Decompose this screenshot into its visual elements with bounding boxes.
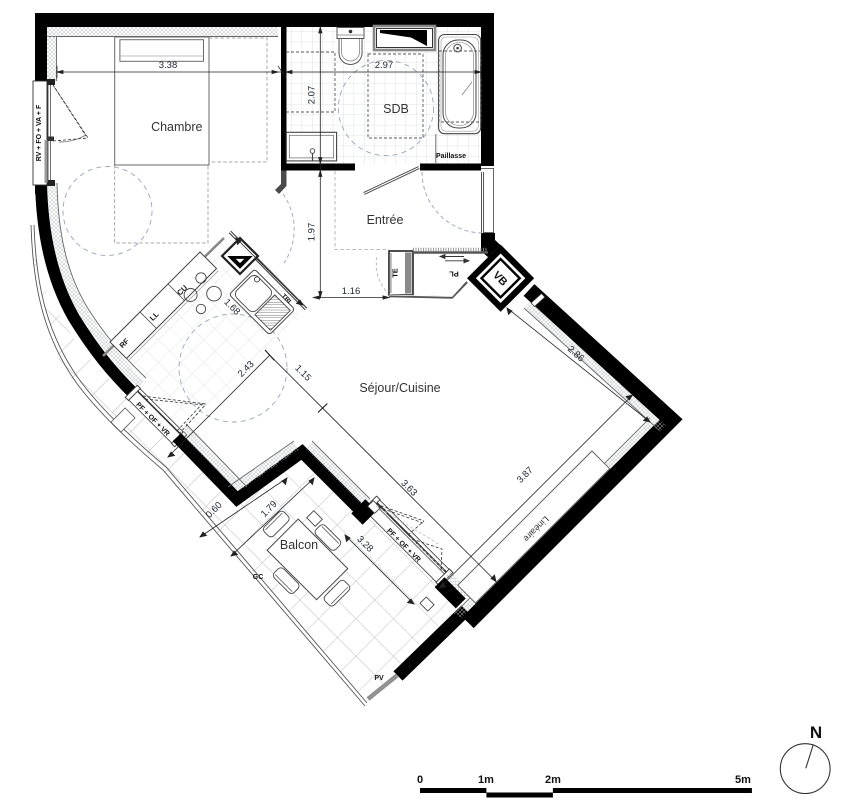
svg-text:2.97: 2.97 <box>375 60 394 71</box>
svg-text:1m: 1m <box>478 774 494 786</box>
svg-text:Chambre: Chambre <box>151 120 202 134</box>
svg-text:5m: 5m <box>735 774 751 786</box>
svg-text:Balcon: Balcon <box>280 538 318 552</box>
svg-text:1.97: 1.97 <box>307 223 318 242</box>
svg-text:GC: GC <box>253 574 264 581</box>
svg-text:2.07: 2.07 <box>307 86 318 105</box>
svg-text:1.16: 1.16 <box>342 286 361 297</box>
svg-text:Entrée: Entrée <box>367 213 404 227</box>
svg-text:N: N <box>810 723 822 742</box>
svg-text:0: 0 <box>417 774 423 786</box>
svg-text:RV + FO + VA + F: RV + FO + VA + F <box>36 104 43 161</box>
svg-text:2m: 2m <box>545 774 561 786</box>
svg-text:Séjour/Cuisine: Séjour/Cuisine <box>359 381 440 395</box>
svg-text:TE: TE <box>391 268 400 278</box>
svg-text:SDB: SDB <box>383 102 409 116</box>
svg-text:3.38: 3.38 <box>159 60 178 71</box>
svg-text:PL: PL <box>449 270 459 279</box>
svg-text:Paillasse: Paillasse <box>436 153 466 160</box>
svg-text:PV: PV <box>374 675 384 682</box>
